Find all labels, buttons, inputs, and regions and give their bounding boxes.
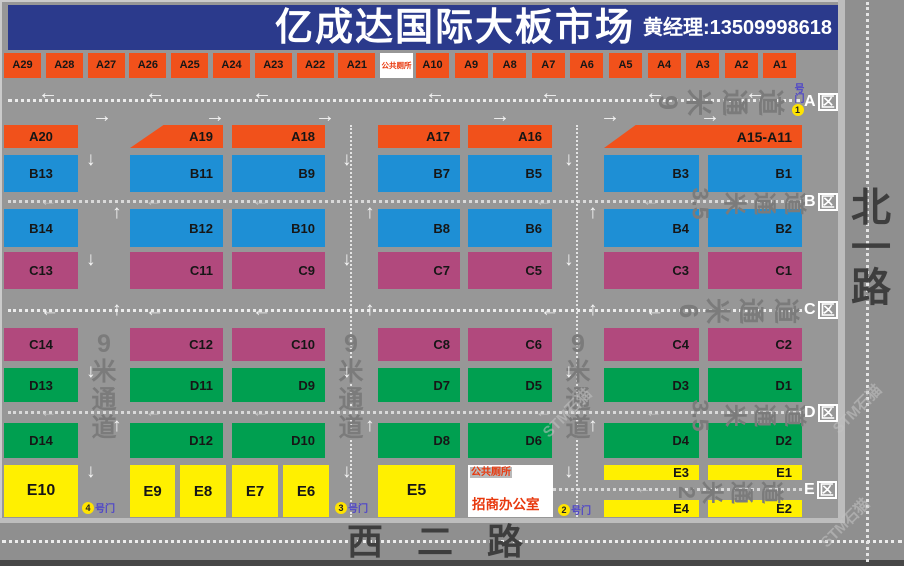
road-arrow: ←	[40, 403, 57, 420]
stall-A27: A27	[88, 53, 125, 78]
stall-C10: C10	[232, 328, 325, 361]
market-map: 亿成达国际大板市场 黄经理:13509998618 北一路 西二路 A29A28…	[0, 0, 904, 566]
stall-A24: A24	[213, 53, 250, 78]
stall-C9: C9	[232, 252, 325, 289]
road-arrow: →	[490, 106, 510, 126]
zone-tag-A: A区	[804, 93, 838, 111]
office-label: 招商办公室	[472, 493, 540, 513]
stall-E5: E5	[378, 465, 455, 517]
stall-C6: C6	[468, 328, 552, 361]
stall-A23: A23	[255, 53, 292, 78]
road-arrow: ↓	[86, 362, 96, 381]
stall-C4: C4	[604, 328, 699, 361]
stall-E6: E6	[283, 465, 329, 517]
stall-A18: A18	[232, 125, 325, 148]
gate-1: 号门1	[790, 83, 805, 116]
stall-A26: A26	[129, 53, 166, 78]
stall-A28: A28	[46, 53, 83, 78]
road-arrow: ←	[535, 192, 552, 209]
road-arrow: ↓	[342, 362, 352, 381]
stall-D8: D8	[378, 423, 460, 458]
zone-tag-E: E区	[804, 481, 837, 499]
stall-E8: E8	[180, 465, 226, 517]
road-arrow: ←	[645, 403, 662, 420]
stall-B7: B7	[378, 155, 460, 192]
road-arrow: ←	[636, 481, 651, 496]
stall-C8: C8	[378, 328, 460, 361]
channel-label-vertical-2: 9米通道	[337, 330, 365, 442]
stall-C3: C3	[604, 252, 699, 289]
stall-B13: B13	[4, 155, 78, 192]
north-road-name: 北一路	[851, 186, 893, 306]
stall-C14: C14	[4, 328, 78, 361]
stall-D11: D11	[130, 368, 223, 402]
stall-A5: A5	[609, 53, 642, 78]
road-arrow: ↓	[564, 362, 574, 381]
road-arrow: ←	[425, 83, 445, 103]
stall-A16: A16	[468, 125, 552, 148]
stall-B10: B10	[232, 209, 325, 247]
stall-A21: A21	[338, 53, 375, 78]
stall-D10: D10	[232, 423, 325, 458]
stall-A20: A20	[4, 125, 78, 148]
stall-C12: C12	[130, 328, 223, 361]
road-arrow: ←	[145, 192, 162, 209]
stall-A3: A3	[686, 53, 719, 78]
road-arrow: ↑	[588, 416, 598, 435]
public-toilet-top: 公共厕所	[380, 53, 413, 78]
stall-A9: A9	[455, 53, 488, 78]
stall-B6: B6	[468, 209, 552, 247]
header-banner: 亿成达国际大板市场 黄经理:13509998618	[8, 5, 838, 50]
stall-A15-A11: A15-A11	[604, 125, 802, 148]
stall-A6: A6	[570, 53, 603, 78]
road-arrow: ←	[645, 83, 665, 103]
channel-label-b: 3.5米通道	[684, 185, 806, 221]
stall-E7: E7	[232, 465, 278, 517]
road-arrow: ↓	[564, 150, 574, 169]
stall-A4: A4	[648, 53, 681, 78]
gate-2: 2号门	[558, 502, 591, 517]
stall-B11: B11	[130, 155, 223, 192]
stall-C11: C11	[130, 252, 223, 289]
road-arrow: ↓	[342, 462, 352, 481]
road-arrow: ←	[38, 83, 58, 103]
stall-A1: A1	[763, 53, 796, 78]
road-arrow: ↑	[365, 203, 375, 222]
road-arrow: ↑	[365, 300, 375, 319]
road-arrow: ←	[642, 192, 659, 209]
road-arrow: ↓	[342, 150, 352, 169]
stall-C13: C13	[4, 252, 78, 289]
stall-D14: D14	[4, 423, 78, 458]
stall-A7: A7	[532, 53, 565, 78]
leasing-office: 公共厕所招商办公室	[468, 465, 553, 517]
stall-A17: A17	[378, 125, 460, 148]
zone-tag-B: B区	[804, 193, 838, 211]
road-arrow: ↑	[365, 416, 375, 435]
channel-label-c: 6米通道	[682, 293, 799, 329]
lane-divider-ch2	[350, 125, 352, 517]
road-arrow: ↓	[86, 250, 96, 269]
road-arrow: ←	[540, 83, 560, 103]
stall-A29: A29	[4, 53, 41, 78]
gate-3: 3号门	[335, 500, 368, 515]
road-arrow: ←	[252, 192, 269, 209]
stall-C1: C1	[708, 252, 802, 289]
public-toilet-bottom: 公共厕所	[470, 467, 512, 478]
stall-B9: B9	[232, 155, 325, 192]
road-arrow: ←	[645, 301, 664, 320]
road-arrow: ←	[145, 83, 165, 103]
zone-tag-C: C区	[804, 301, 838, 319]
road-arrow: ←	[40, 301, 59, 320]
road-arrow: ←	[252, 403, 269, 420]
road-arrow: ←	[252, 301, 271, 320]
road-arrow: ←	[540, 301, 559, 320]
lane-divider-d	[8, 411, 802, 414]
road-arrow: ←	[252, 83, 272, 103]
stall-B12: B12	[130, 209, 223, 247]
stall-D5: D5	[468, 368, 552, 402]
road-arrow: ↓	[564, 462, 574, 481]
road-arrow: →	[92, 106, 112, 126]
lane-divider-ch3	[576, 125, 578, 517]
road-arrow: ←	[40, 192, 57, 209]
stall-D12: D12	[130, 423, 223, 458]
road-arrow: →	[205, 106, 225, 126]
road-arrow: ↓	[564, 250, 574, 269]
channel-label-d: 3.5米通道	[684, 397, 806, 433]
stall-B5: B5	[468, 155, 552, 192]
stall-A2: A2	[725, 53, 758, 78]
market-title: 亿成达国际大板市场	[275, 9, 635, 47]
stall-B14: B14	[4, 209, 78, 247]
west-road-name: 西二路	[0, 524, 904, 560]
road-arrow: ←	[145, 301, 164, 320]
road-arrow: ↑	[112, 416, 122, 435]
lane-divider-b	[8, 200, 802, 203]
stall-E9: E9	[130, 465, 175, 517]
road-arrow: ←	[145, 403, 162, 420]
stall-B8: B8	[378, 209, 460, 247]
road-arrow: ←	[745, 83, 765, 103]
road-arrow: ↓	[86, 150, 96, 169]
road-arrow: →	[600, 106, 620, 126]
stall-A22: A22	[297, 53, 334, 78]
stall-D9: D9	[232, 368, 325, 402]
road-arrow: ↑	[112, 203, 122, 222]
stall-C7: C7	[378, 252, 460, 289]
channel-label-e: 2米通道	[680, 474, 783, 510]
stall-D13: D13	[4, 368, 78, 402]
road-arrow: →	[700, 106, 720, 126]
road-arrow: ↓	[86, 462, 96, 481]
road-arrow: ↑	[112, 300, 122, 319]
road-arrow: ↓	[342, 250, 352, 269]
stall-C2: C2	[708, 328, 802, 361]
stall-C5: C5	[468, 252, 552, 289]
contact-phone: 黄经理:13509998618	[643, 18, 832, 38]
road-arrow: ↑	[588, 300, 598, 319]
stall-A25: A25	[171, 53, 208, 78]
gate-4: 4号门	[82, 500, 115, 515]
stall-A10: A10	[416, 53, 449, 78]
stall-A8: A8	[493, 53, 526, 78]
road-arrow: →	[315, 106, 335, 126]
road-arrow: ↑	[588, 203, 598, 222]
stall-E10: E10	[4, 465, 78, 517]
stall-D7: D7	[378, 368, 460, 402]
